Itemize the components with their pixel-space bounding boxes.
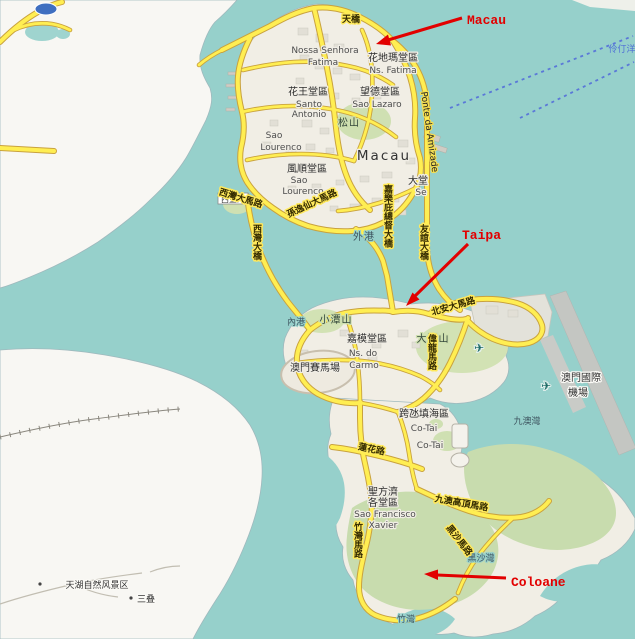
road-label-wai-long: 偉龍馬路	[426, 333, 438, 371]
label-sandie: 三叠	[137, 594, 155, 605]
annotation-taipa: Taipa	[462, 228, 501, 243]
label-ns-fatima: Ns. Fatima	[369, 66, 416, 76]
label-fatima-pt: Fatima	[308, 58, 338, 68]
label-guia-hill: 松山	[338, 116, 360, 129]
airplane-icon: ✈	[541, 379, 551, 393]
label-xavier-pt2: Xavier	[369, 521, 398, 531]
poi-dot-tianhu	[38, 582, 41, 585]
label-taipa-pequena: 小潭山	[320, 314, 353, 326]
annotation-macau: Macau	[467, 13, 506, 28]
label-airport-1: 澳門國際	[561, 371, 601, 384]
road-label-sai-van-bridge: 西灣大橋	[251, 224, 262, 261]
label-xavier-zh2: 各堂區	[368, 496, 398, 509]
cotai-dome	[451, 453, 469, 467]
label-sao-1: Sao	[266, 131, 283, 141]
poi-dot-sandie	[129, 596, 132, 599]
road-label-ponte-amizade-zh: 友誼大橋	[418, 223, 429, 261]
label-racecourse: 澳門賽馬場	[290, 361, 340, 374]
label-fatima-zh: 花地瑪堂區	[368, 51, 418, 64]
label-se: Se	[415, 188, 427, 198]
map-canvas[interactable]: Nossa Senhora Fatima 花地瑪堂區 Ns. Fatima 花王…	[0, 0, 635, 639]
road-label-footbridge: 天橋	[342, 13, 361, 25]
label-fa-wong: 花王堂區	[288, 85, 328, 98]
label-carmo-pt2: Carmo	[349, 361, 379, 371]
road-label-nobre-carvalho: 嘉樂庇總督大橋	[382, 183, 394, 248]
label-cotai-2: Co-Tai	[417, 441, 443, 451]
label-hac-sa-bay: 黑沙灣	[467, 552, 494, 564]
label-lourenco-1: Lourenco	[260, 143, 302, 153]
label-antonio: Antonio	[292, 110, 327, 120]
label-tai-tong: 大堂	[408, 174, 428, 187]
label-carmo-zh: 嘉模堂區	[347, 332, 387, 345]
annotation-coloane: Coloane	[511, 575, 566, 590]
road-label-cheoc-van-rd: 竹灣馬路	[352, 521, 364, 559]
label-lingding: 伶仃洋	[608, 43, 635, 55]
label-macau-city: Macau	[357, 148, 411, 164]
label-inner-harbour: 內港	[287, 316, 305, 328]
label-cotai-1: Co-Tai	[411, 424, 437, 434]
label-outer-harbour: 外港	[353, 231, 375, 243]
label-sao-lazaro: Sao Lazaro	[352, 100, 402, 110]
label-cheoc-van-bay: 竹灣	[397, 613, 415, 625]
label-santo: Santo	[296, 100, 322, 110]
map-viewport[interactable]: Nossa Senhora Fatima 花地瑪堂區 Ns. Fatima 花王…	[0, 0, 635, 639]
label-xavier-pt1: Sao Francisco	[354, 510, 416, 520]
label-mong-tak: 望德堂區	[360, 85, 400, 98]
label-fung-shun: 風順堂區	[287, 163, 327, 175]
label-nossa-senhora: Nossa Senhora	[291, 46, 358, 56]
route-shield-icon	[35, 3, 57, 15]
cotai-stadium	[452, 424, 468, 448]
label-sao-2: Sao	[291, 176, 308, 186]
label-xavier-zh1: 聖方濟	[368, 485, 398, 498]
label-cotai-zh: 跨氹填海區	[399, 407, 449, 420]
label-ka-ho-bay: 九澳灣	[513, 415, 540, 427]
airplane-icon: ✈	[474, 341, 484, 355]
label-tianhu: 天湖自然风景区	[65, 579, 128, 591]
label-carmo-pt1: Ns. do	[349, 349, 378, 359]
label-airport-2: 機場	[568, 386, 588, 399]
